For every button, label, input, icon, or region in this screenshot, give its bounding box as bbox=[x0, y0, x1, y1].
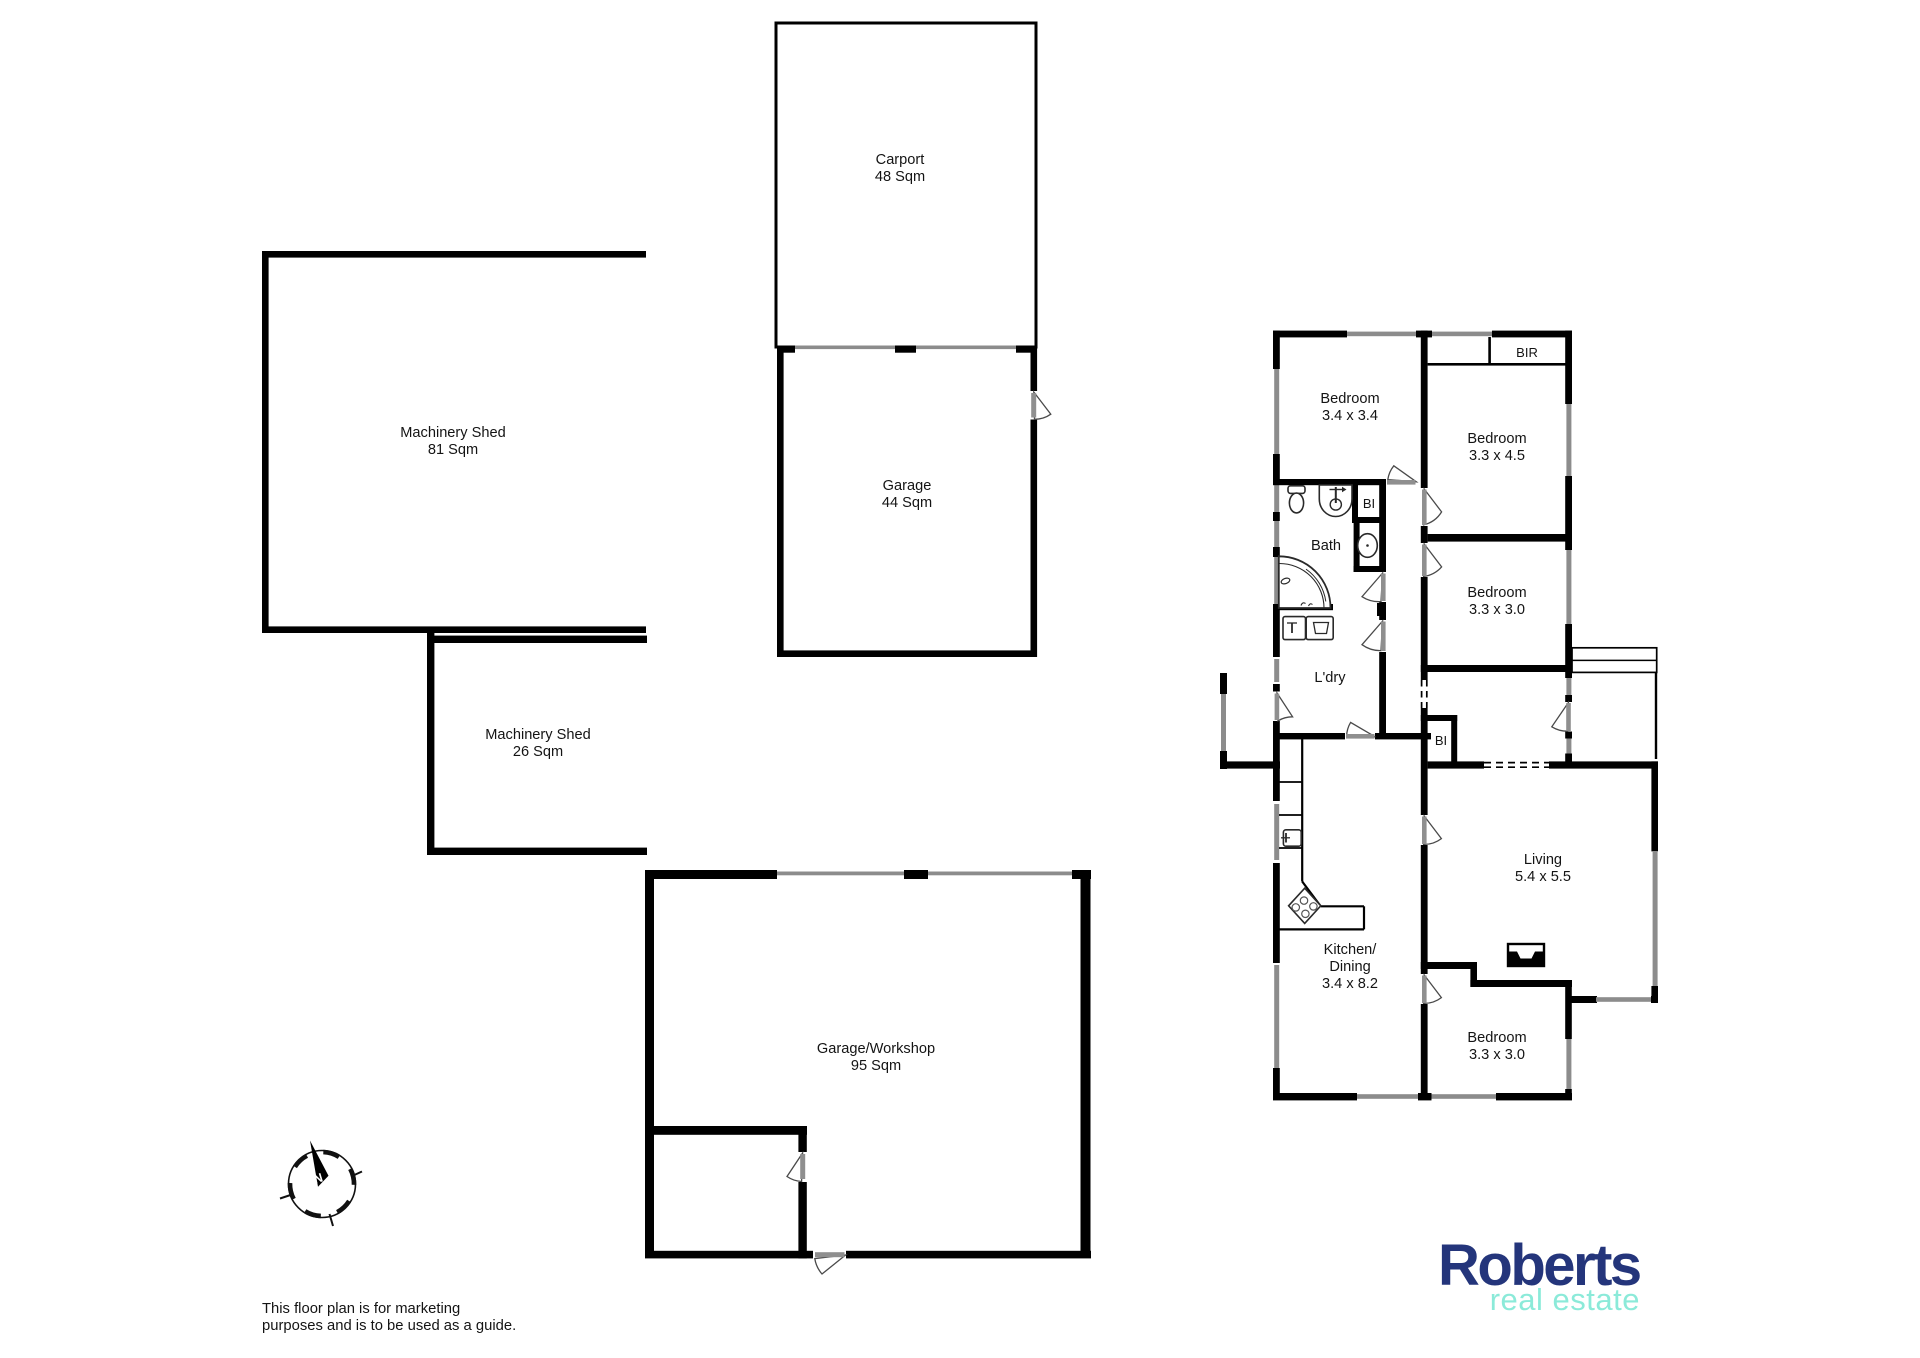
svg-text:BI: BI bbox=[1363, 496, 1375, 511]
svg-text:48 Sqm: 48 Sqm bbox=[875, 169, 925, 185]
svg-text:Machinery Shed: Machinery Shed bbox=[485, 727, 590, 743]
svg-text:Bedroom: Bedroom bbox=[1320, 391, 1379, 407]
svg-text:purposes and is to be used as: purposes and is to be used as a guide. bbox=[262, 1318, 516, 1334]
svg-text:Garage: Garage bbox=[883, 478, 932, 494]
svg-text:95 Sqm: 95 Sqm bbox=[851, 1058, 901, 1074]
svg-text:5.4 x 5.5: 5.4 x 5.5 bbox=[1515, 869, 1571, 885]
svg-text:BIR: BIR bbox=[1516, 345, 1538, 360]
svg-text:81 Sqm: 81 Sqm bbox=[428, 442, 478, 458]
svg-text:Kitchen/: Kitchen/ bbox=[1324, 942, 1378, 958]
svg-text:Bath: Bath bbox=[1311, 538, 1341, 554]
svg-text:26 Sqm: 26 Sqm bbox=[513, 744, 563, 760]
svg-text:Living: Living bbox=[1524, 852, 1562, 868]
svg-text:Bedroom: Bedroom bbox=[1467, 1030, 1526, 1046]
svg-text:3.4 x 8.2: 3.4 x 8.2 bbox=[1322, 976, 1378, 992]
svg-text:3.3 x 4.5: 3.3 x 4.5 bbox=[1469, 448, 1525, 464]
svg-text:3.3 x 3.0: 3.3 x 3.0 bbox=[1469, 1047, 1525, 1063]
svg-text:44 Sqm: 44 Sqm bbox=[882, 495, 932, 511]
svg-text:Carport: Carport bbox=[876, 152, 925, 168]
svg-text:Dining: Dining bbox=[1329, 959, 1370, 975]
svg-text:Bedroom: Bedroom bbox=[1467, 431, 1526, 447]
svg-text:BI: BI bbox=[1435, 733, 1447, 748]
svg-text:Bedroom: Bedroom bbox=[1467, 585, 1526, 601]
svg-text:3.3 x 3.0: 3.3 x 3.0 bbox=[1469, 602, 1525, 618]
svg-text:real estate: real estate bbox=[1490, 1282, 1640, 1317]
svg-text:Machinery Shed: Machinery Shed bbox=[400, 425, 505, 441]
svg-text:3.4 x 3.4: 3.4 x 3.4 bbox=[1322, 408, 1378, 424]
svg-text:This floor plan is for marketi: This floor plan is for marketing bbox=[262, 1301, 460, 1317]
svg-text:L'dry: L'dry bbox=[1314, 670, 1346, 686]
svg-text:Garage/Workshop: Garage/Workshop bbox=[817, 1041, 935, 1057]
